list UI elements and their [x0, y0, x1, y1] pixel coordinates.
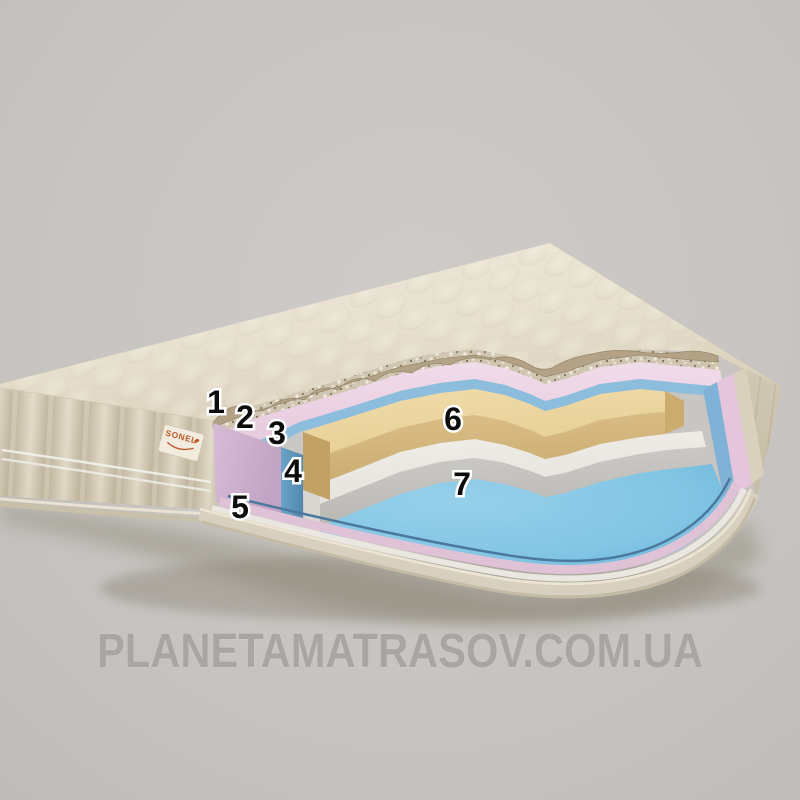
- mattress-cutaway-illustration: SONEL: [0, 0, 800, 800]
- layer-label-4: 4: [284, 453, 302, 489]
- layer-label-2: 2: [236, 399, 254, 435]
- product-render-canvas: SONEL: [0, 0, 800, 800]
- layer-label-7: 7: [453, 466, 471, 502]
- layer-label-3: 3: [268, 415, 286, 451]
- tan-foam-left-end-face: [303, 432, 330, 500]
- layer-label-6: 6: [444, 401, 462, 437]
- watermark-text: PLANETAMATRASOV.COM.UA: [97, 625, 703, 678]
- layer-label-1: 1: [207, 384, 225, 420]
- layer-label-5: 5: [231, 489, 249, 525]
